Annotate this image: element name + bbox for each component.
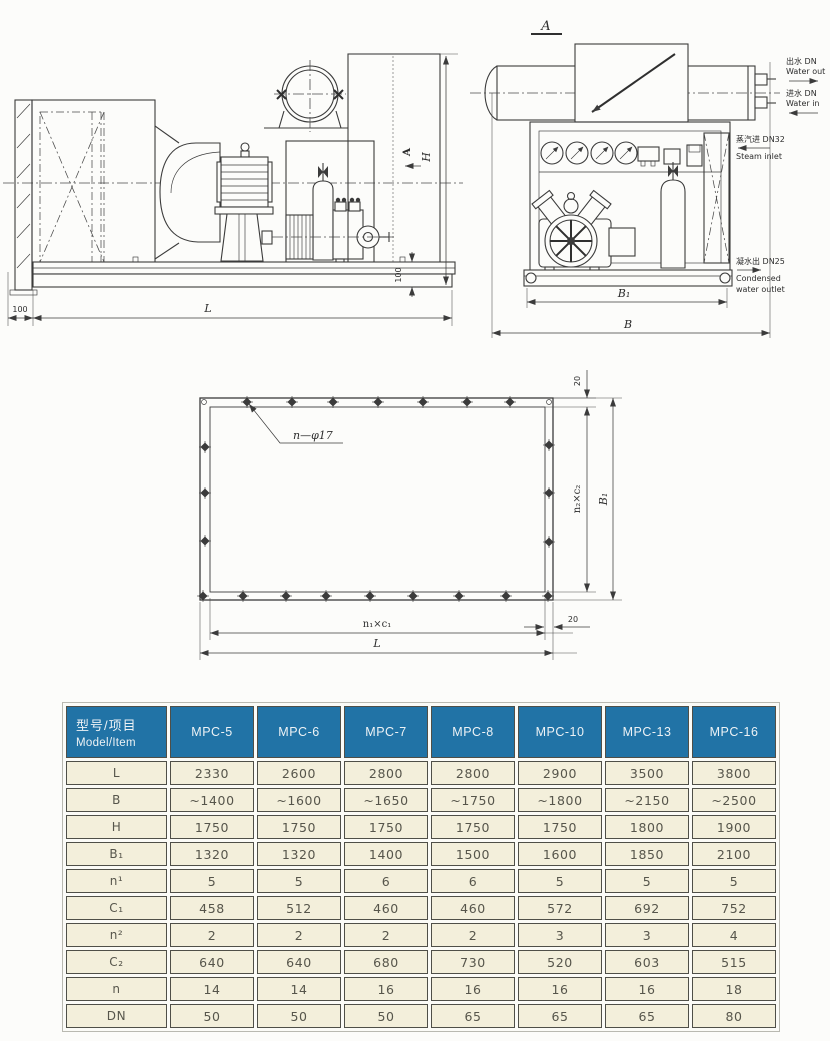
section-view-arrow-label: A xyxy=(401,147,413,157)
cell: 752 xyxy=(692,896,776,920)
cell: ~1600 xyxy=(257,788,341,812)
header-model-mpc10: MPC-10 xyxy=(518,706,602,758)
header-model-mpc16: MPC-16 xyxy=(692,706,776,758)
condensed-water-label-cn: 凝水出 DN25 xyxy=(736,256,785,266)
plan-dimensions: 20 n₂×c₂ B₁ n₁×c₁ L 20 xyxy=(200,370,622,660)
cell: 1750 xyxy=(431,815,515,839)
cell: 1400 xyxy=(344,842,428,866)
header-row: 型号/项目 Model/Item MPC-5 MPC-6 MPC-7 MPC-8… xyxy=(66,706,776,758)
cell: 2 xyxy=(344,923,428,947)
compressor-front xyxy=(532,190,635,273)
section-title-label: A xyxy=(540,19,550,34)
cell: 1800 xyxy=(605,815,689,839)
water-in-label-cn: 进水 DN xyxy=(786,88,817,98)
hole-callout: n—φ17 xyxy=(249,404,343,443)
row-label: n² xyxy=(66,923,167,947)
row-B: B ~1400 ~1600 ~1650 ~1750 ~1800 ~2150 ~2… xyxy=(66,788,776,812)
row-label: C₁ xyxy=(66,896,167,920)
cell: 730 xyxy=(431,950,515,974)
row-DN: DN 50 50 50 65 65 65 80 xyxy=(66,1004,776,1028)
bolt-holes xyxy=(197,396,555,602)
cell: 1900 xyxy=(692,815,776,839)
row-label: H xyxy=(66,815,167,839)
cell: 5 xyxy=(605,869,689,893)
cell: 1750 xyxy=(257,815,341,839)
water-in-label-en: Water in xyxy=(786,99,819,108)
dim-L-plan: L xyxy=(372,637,380,650)
row-H: H 1750 1750 1750 1750 1750 1800 1900 xyxy=(66,815,776,839)
base-frame-side xyxy=(33,257,455,287)
drawing-sheet: 100 L H A 100 A xyxy=(0,0,830,1041)
cell: 1750 xyxy=(344,815,428,839)
cell: 80 xyxy=(692,1004,776,1028)
cell: 2100 xyxy=(692,842,776,866)
gauge-panel xyxy=(541,142,702,166)
header-model-mpc8: MPC-8 xyxy=(431,706,515,758)
cell: 16 xyxy=(518,977,602,1001)
cell: 460 xyxy=(431,896,515,920)
cell: 14 xyxy=(170,977,254,1001)
cell: ~1400 xyxy=(170,788,254,812)
cell: ~1650 xyxy=(344,788,428,812)
cell: 2900 xyxy=(518,761,602,785)
dim-B1: B₁ xyxy=(617,287,631,300)
cell: 50 xyxy=(344,1004,428,1028)
cell: 1750 xyxy=(170,815,254,839)
header-model-mpc5: MPC-5 xyxy=(170,706,254,758)
cell: 50 xyxy=(170,1004,254,1028)
cell: 5 xyxy=(257,869,341,893)
motor xyxy=(215,143,273,261)
base-plan-drawing: n—φ17 20 n₂×c₂ B₁ n₁×c₁ L xyxy=(140,355,660,690)
flange-frame xyxy=(200,398,553,600)
row-label: C₂ xyxy=(66,950,167,974)
cell: 2800 xyxy=(344,761,428,785)
dim-100-left: 100 xyxy=(12,305,27,314)
cell: 640 xyxy=(170,950,254,974)
cell: 2 xyxy=(170,923,254,947)
heat-exchanger-cylinder xyxy=(470,44,780,122)
header-model-mpc6: MPC-6 xyxy=(257,706,341,758)
dim-100-base: 100 xyxy=(394,267,403,282)
section-a-drawing: A xyxy=(460,0,830,360)
cell: 1320 xyxy=(257,842,341,866)
header-model-mpc13: MPC-13 xyxy=(605,706,689,758)
header-model-mpc7: MPC-7 xyxy=(344,706,428,758)
row-n1: n¹ 5 5 6 6 5 5 5 xyxy=(66,869,776,893)
cell: 18 xyxy=(692,977,776,1001)
cell: 65 xyxy=(431,1004,515,1028)
cell: 680 xyxy=(344,950,428,974)
cell: 2330 xyxy=(170,761,254,785)
dim-n2c2: n₂×c₂ xyxy=(572,485,583,513)
cell: 515 xyxy=(692,950,776,974)
cell: 14 xyxy=(257,977,341,1001)
cell: 692 xyxy=(605,896,689,920)
row-label: L xyxy=(66,761,167,785)
row-label: B₁ xyxy=(66,842,167,866)
outlet-flange-circle xyxy=(264,60,348,132)
cell: 2800 xyxy=(431,761,515,785)
cell: ~1800 xyxy=(518,788,602,812)
cell: 460 xyxy=(344,896,428,920)
header-model-item: 型号/项目 Model/Item xyxy=(66,706,167,758)
dim-20-bottom: 20 xyxy=(568,615,578,624)
cell: 6 xyxy=(344,869,428,893)
cell: 65 xyxy=(518,1004,602,1028)
dim-B1-plan: B₁ xyxy=(597,493,610,507)
cell: 3800 xyxy=(692,761,776,785)
dim-B: B xyxy=(623,318,632,331)
cell: 50 xyxy=(257,1004,341,1028)
cell: 5 xyxy=(518,869,602,893)
row-label: B xyxy=(66,788,167,812)
condensed-water-label-en1: Condensed xyxy=(736,274,781,283)
cell: ~2500 xyxy=(692,788,776,812)
water-out-label-cn: 出水 DN xyxy=(786,56,817,66)
cell: ~2150 xyxy=(605,788,689,812)
receiver-tank xyxy=(661,162,685,268)
cell: 1750 xyxy=(518,815,602,839)
row-n2: n² 2 2 2 2 3 3 4 xyxy=(66,923,776,947)
row-C1: C₁ 458 512 460 460 572 692 752 xyxy=(66,896,776,920)
condensed-water-label-en2: water outlet xyxy=(736,285,785,294)
cell: 6 xyxy=(431,869,515,893)
dim-H: H xyxy=(420,152,433,163)
row-n: n 14 14 16 16 16 16 18 xyxy=(66,977,776,1001)
cell: 65 xyxy=(605,1004,689,1028)
cell: 16 xyxy=(344,977,428,1001)
cell: 16 xyxy=(605,977,689,1001)
cell: 5 xyxy=(692,869,776,893)
cell: 4 xyxy=(692,923,776,947)
cell: 1320 xyxy=(170,842,254,866)
cell: 3 xyxy=(605,923,689,947)
cell: 640 xyxy=(257,950,341,974)
cell: 5 xyxy=(170,869,254,893)
cell: 1850 xyxy=(605,842,689,866)
cell: 3 xyxy=(518,923,602,947)
x-brace xyxy=(704,133,729,263)
steam-inlet-label-cn: 蒸汽进 DN32 xyxy=(736,134,785,144)
cell: 520 xyxy=(518,950,602,974)
cell: 16 xyxy=(431,977,515,1001)
header-model-item-en: Model/Item xyxy=(76,737,166,749)
row-L: L 2330 2600 2800 2800 2900 3500 3800 xyxy=(66,761,776,785)
cell: 3500 xyxy=(605,761,689,785)
cell: 2 xyxy=(431,923,515,947)
row-C2: C₂ 640 640 680 730 520 603 515 xyxy=(66,950,776,974)
cell: 603 xyxy=(605,950,689,974)
cell: 572 xyxy=(518,896,602,920)
row-label: n xyxy=(66,977,167,1001)
hole-callout-label: n—φ17 xyxy=(293,429,333,442)
steam-inlet-label-en: Steam inlet xyxy=(736,152,782,161)
dim-L: L xyxy=(203,302,211,315)
row-label: n¹ xyxy=(66,869,167,893)
row-label: DN xyxy=(66,1004,167,1028)
cell: 512 xyxy=(257,896,341,920)
cell: 2600 xyxy=(257,761,341,785)
dim-20-top: 20 xyxy=(573,376,582,386)
cell: 1600 xyxy=(518,842,602,866)
cell: 1500 xyxy=(431,842,515,866)
base-frame-front xyxy=(524,270,732,286)
row-B1: B₁ 1320 1320 1400 1500 1600 1850 2100 xyxy=(66,842,776,866)
cell: 2 xyxy=(257,923,341,947)
cell: ~1750 xyxy=(431,788,515,812)
spec-table: 型号/项目 Model/Item MPC-5 MPC-6 MPC-7 MPC-8… xyxy=(62,702,780,1032)
section-title: A xyxy=(531,19,562,34)
water-out-label-en: Water out xyxy=(786,67,825,76)
side-elevation-drawing: 100 L H A 100 xyxy=(0,0,470,350)
small-tank xyxy=(313,163,333,260)
cell: 458 xyxy=(170,896,254,920)
header-model-item-cn: 型号/项目 xyxy=(76,715,166,734)
dim-n1c1: n₁×c₁ xyxy=(363,619,391,630)
